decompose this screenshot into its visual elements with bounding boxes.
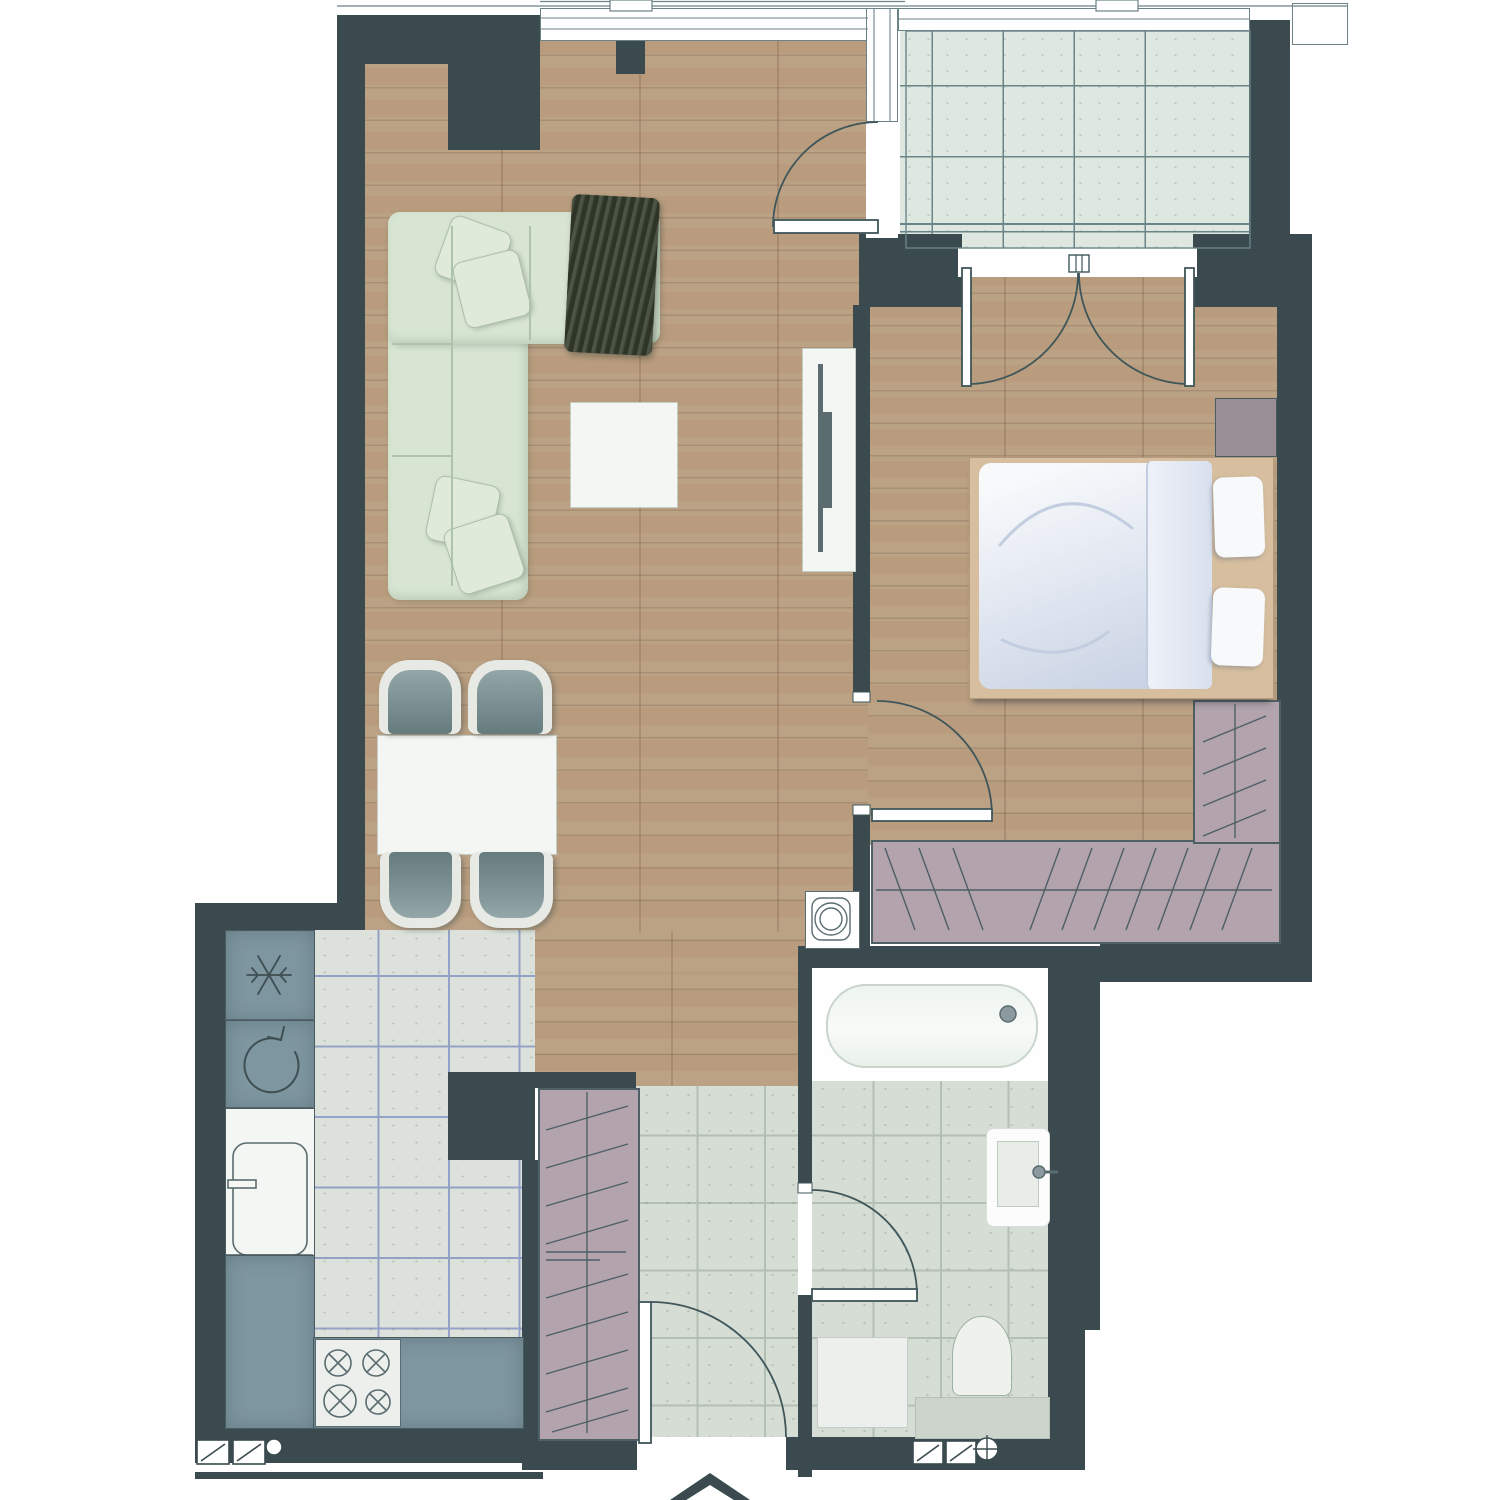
bed-pillow-2 xyxy=(1211,587,1266,667)
vent-fixture xyxy=(805,891,860,949)
wall-closet-top xyxy=(535,1072,636,1088)
wall-living-left xyxy=(337,15,365,903)
wall-exterior-step-line xyxy=(195,1472,543,1479)
dining-chair-4-seat xyxy=(479,852,544,918)
wall-bath-left-upper xyxy=(798,968,812,1192)
dining-chair-1-seat xyxy=(388,670,452,734)
wall-kitchen-stub xyxy=(448,1072,535,1160)
opening-entrance xyxy=(637,1437,786,1470)
floor-hallway xyxy=(636,1086,798,1437)
washbasin-bowl xyxy=(997,1141,1039,1207)
dining-chair-1 xyxy=(379,660,461,734)
window-living-room xyxy=(540,8,868,41)
hall-closet xyxy=(538,1088,640,1441)
wall-column xyxy=(448,64,540,150)
tv-screen-center xyxy=(821,412,832,508)
wall-kitchen-bottom xyxy=(195,1427,522,1463)
wall-kitchen-left xyxy=(195,903,225,1463)
nightstand xyxy=(1215,398,1277,457)
kitchen-unit-appliance xyxy=(225,1020,315,1110)
floor-hall-lower xyxy=(535,972,798,1086)
wall-bath-bottom xyxy=(778,1437,1085,1470)
dining-chair-2-seat xyxy=(477,670,543,734)
bedroom-wardrobe-vertical xyxy=(1193,700,1281,844)
washing-machine xyxy=(817,1337,908,1428)
throw-blanket xyxy=(564,194,660,356)
wall-kitchen-top xyxy=(195,903,365,930)
coffee-table xyxy=(570,402,678,508)
wall-french-door-pier xyxy=(1193,234,1277,307)
window-balcony-railing xyxy=(898,8,1250,31)
kitchen-unit-sink xyxy=(225,1108,315,1257)
window-frame-top-right xyxy=(1292,3,1348,45)
wall-closet-bottom xyxy=(522,1437,637,1470)
opening-french-doors xyxy=(958,248,1197,277)
dining-chair-3 xyxy=(380,852,461,928)
dining-table xyxy=(377,735,557,855)
opening-balcony-door xyxy=(866,122,898,238)
wall-bath-left-lower xyxy=(798,1295,812,1477)
dining-chair-4 xyxy=(470,852,553,928)
kitchen-unit-freezer xyxy=(225,930,315,1022)
bathroom-ledge xyxy=(915,1397,1050,1439)
dining-chair-3-seat xyxy=(389,852,452,918)
wall-under-balcony-door xyxy=(859,234,962,307)
toilet xyxy=(952,1316,1012,1396)
wall-balcony-right xyxy=(1249,20,1290,250)
floor-balcony xyxy=(900,31,1250,248)
bathtub xyxy=(826,984,1038,1068)
bed-pillow-1 xyxy=(1213,476,1266,558)
entrance-arrow-icon xyxy=(667,1473,753,1500)
wall-kitchen-right xyxy=(522,1160,538,1437)
kitchen-counter-lower xyxy=(225,1255,315,1429)
wall-bath-right-upper xyxy=(1048,968,1100,1330)
bedroom-wardrobe-band xyxy=(871,840,1281,944)
dining-chair-2 xyxy=(468,660,552,734)
window-balcony-door-side xyxy=(866,8,898,122)
wall-top-left-slab xyxy=(337,15,540,64)
kitchen-hob xyxy=(315,1339,401,1427)
floor-plan-canvas xyxy=(0,0,1500,1500)
wall-bedroom-bottom-right xyxy=(1100,940,1312,982)
wall-bedroom-right xyxy=(1277,234,1312,940)
bed-duvet-fold xyxy=(1146,461,1212,689)
